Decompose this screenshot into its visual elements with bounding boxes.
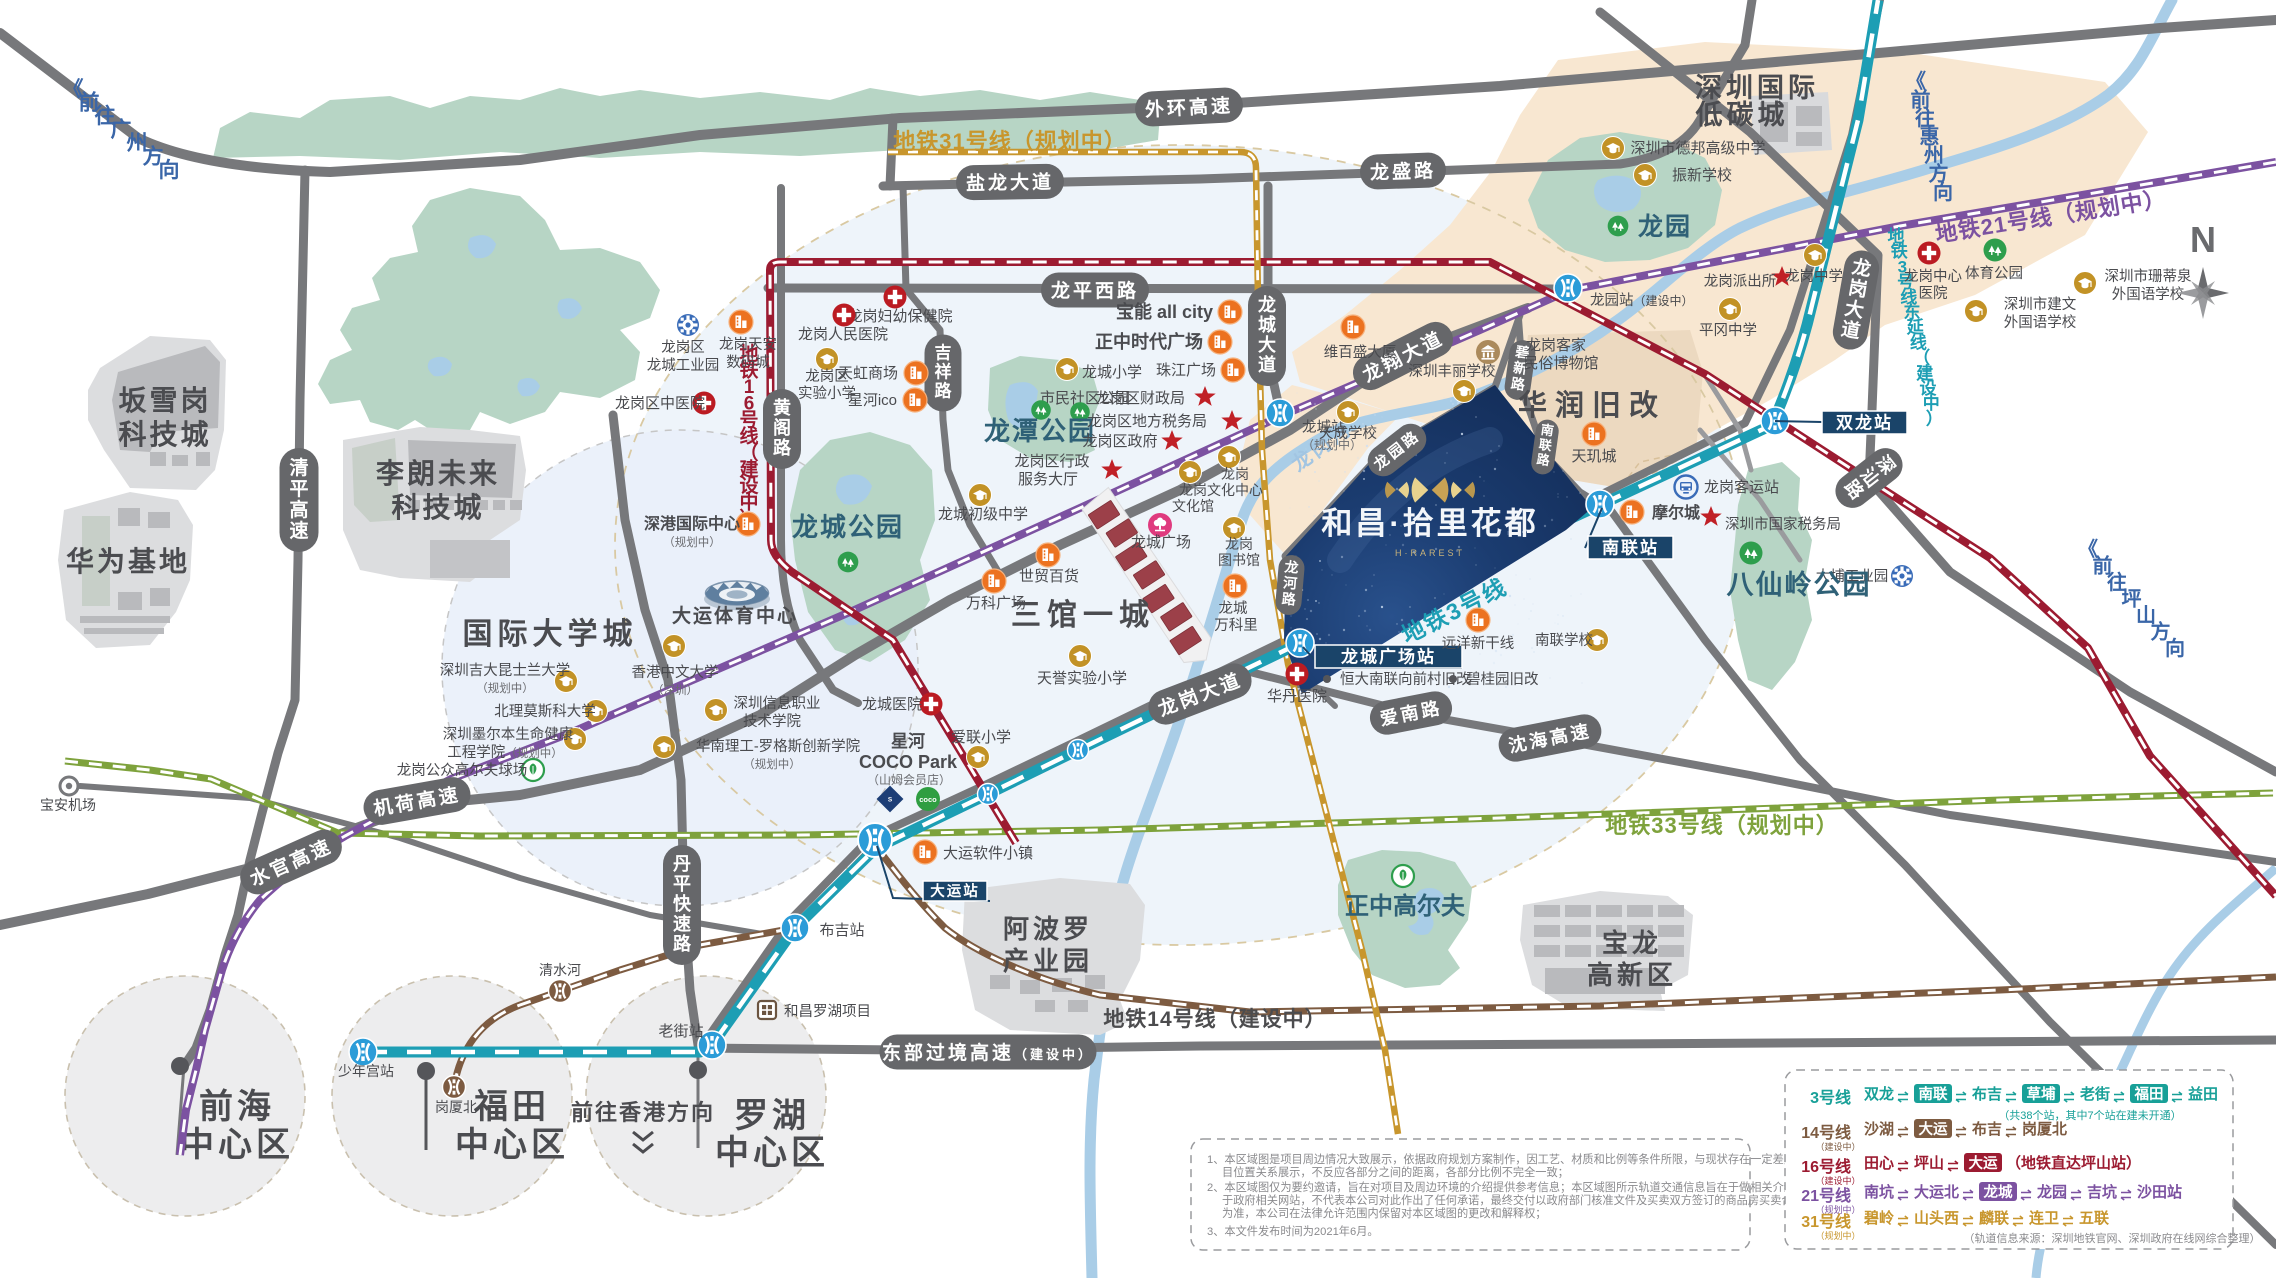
svg-text:南联学校: 南联学校 [1535,632,1593,649]
svg-text:龙岗区中医院: 龙岗区中医院 [615,394,705,412]
svg-text:于政府相关网站，不代表本公司对此作出了任何承诺，最终交付以政: 于政府相关网站，不代表本公司对此作出了任何承诺，最终交付以政府部门核准文件及买卖… [1222,1193,1849,1207]
svg-text:深港国际中心: 深港国际中心 [644,514,740,533]
svg-text:和昌·拾里花都: 和昌·拾里花都 [1321,506,1538,541]
svg-text:前往香港方向: 前往香港方向 [571,1100,715,1125]
svg-text:向: 向 [159,158,180,182]
svg-text:31号线: 31号线 [1801,1212,1851,1231]
svg-text:龙城工业园: 龙城工业园 [647,357,720,374]
svg-text:地铁33号线（规划中）: 地铁33号线（规划中） [1605,813,1838,838]
svg-text:民俗博物馆: 民俗博物馆 [1523,355,1598,372]
svg-text:连卫: 连卫 [2029,1209,2059,1227]
svg-text:田心: 田心 [1864,1155,1894,1172]
svg-text:）: ） [1926,408,1943,428]
svg-text:宝能 all city: 宝能 all city [1116,301,1213,322]
svg-text:大运北: 大运北 [1914,1183,1959,1201]
svg-text:速: 速 [673,913,691,934]
svg-text:1、本区域图是项目周边情况大致展示，依据政府规划方案制作，因: 1、本区域图是项目周边情况大致展示，依据政府规划方案制作，因工艺、材质和比例等条… [1207,1152,1851,1166]
svg-text:路: 路 [935,381,953,401]
svg-text:龙岗中学: 龙岗中学 [1785,268,1843,285]
svg-text:为准，本公司在法律允许范围内保留对本区域图的更改和解释权；: 为准，本公司在法律允许范围内保留对本区域图的更改和解释权； [1222,1206,1546,1220]
svg-text:龙城: 龙城 [1219,600,1248,617]
svg-text:龙: 龙 [1258,294,1276,315]
svg-text:中心区: 中心区 [180,1126,294,1164]
svg-text:吉坑: 吉坑 [2087,1183,2117,1201]
svg-text:大: 大 [1258,334,1276,355]
svg-text:大运: 大运 [1919,1120,1948,1138]
svg-text:大运: 大运 [1969,1154,1998,1172]
svg-text:深圳丰丽学校: 深圳丰丽学校 [1409,363,1496,380]
svg-text:COCO Park: COCO Park [859,752,958,772]
svg-text:科技城: 科技城 [391,492,484,523]
svg-text:低碳城: 低碳城 [1695,100,1789,130]
svg-text:布吉站: 布吉站 [819,922,864,939]
svg-text:（规划中）: （规划中） [476,681,534,695]
svg-text:三馆一城: 三馆一城 [1011,598,1155,632]
svg-text:（地铁直达坪山站）: （地铁直达坪山站） [2006,1154,2141,1172]
svg-text:高新区: 高新区 [1587,960,1677,990]
svg-text:华南理工-罗格斯创新学院: 华南理工-罗格斯创新学院 [696,738,861,755]
svg-text:岗: 岗 [1847,277,1870,302]
svg-text:龙: 龙 [1850,255,1873,281]
svg-text:正中时代广场: 正中时代广场 [1095,331,1203,352]
svg-text:深圳墨尔本生命健康: 深圳墨尔本生命健康 [443,725,574,743]
svg-text:沙田站: 沙田站 [2137,1183,2182,1201]
svg-text:福田: 福田 [2134,1085,2164,1103]
svg-text:中心区: 中心区 [715,1134,829,1172]
svg-text:摩尔城: 摩尔城 [1652,503,1700,522]
svg-text:（建设中）: （建设中） [1815,1141,1860,1152]
svg-text:科技城: 科技城 [118,419,211,450]
svg-text:深圳市珊蒂泉: 深圳市珊蒂泉 [2105,268,2192,285]
svg-text:龙岗: 龙岗 [1179,482,1207,498]
svg-text:数码城: 数码城 [726,354,770,371]
svg-text:爱联小学: 爱联小学 [951,729,1011,746]
svg-text:龙岗区行政: 龙岗区行政 [1014,453,1089,470]
svg-text:碧桂园旧改: 碧桂园旧改 [1466,671,1539,688]
svg-text:李朗未来: 李朗未来 [376,458,500,489]
svg-text:龙岗人民医院: 龙岗人民医院 [798,325,888,343]
svg-text:龙城医院: 龙城医院 [862,695,922,713]
svg-text:龙岗客家: 龙岗客家 [1526,337,1586,354]
svg-text:深圳信息职业: 深圳信息职业 [734,695,821,712]
svg-text:道: 道 [1258,354,1276,375]
svg-text:大运站: 大运站 [930,882,980,900]
svg-text:（共38个站，其中7个站在建未开通）: （共38个站，其中7个站在建未开通） [1998,1108,2181,1122]
svg-text:深圳国际: 深圳国际 [1695,73,1819,103]
svg-text:21号线: 21号线 [1801,1186,1851,1205]
svg-text:龙岗天安: 龙岗天安 [719,336,777,353]
svg-text:宝龙: 宝龙 [1602,928,1662,958]
svg-text:双龙站: 双龙站 [1836,413,1893,433]
svg-text:香港中文大学: 香港中文大学 [632,664,719,681]
svg-text:服务大厅: 服务大厅 [1018,471,1078,488]
svg-text:体育公园: 体育公园 [1965,265,2023,282]
svg-text:福田: 福田 [473,1088,550,1126]
svg-text:麟联: 麟联 [1979,1209,2010,1227]
svg-text:（深圳）: （深圳） [652,683,698,697]
svg-text:2、本区域图仅为要约邀请，旨在对项目及周边环境的介绍提供参考: 2、本区域图仅为要约邀请，旨在对项目及周边环境的介绍提供参考信息；本区域图所示轨… [1207,1180,1851,1194]
svg-text:阿波罗: 阿波罗 [1003,914,1093,944]
svg-text:龙岗: 龙岗 [1221,466,1249,482]
svg-text:龙岗中心: 龙岗中心 [1904,268,1962,285]
svg-text:龙岗妇幼保健院: 龙岗妇幼保健院 [847,307,952,325]
svg-text:图书馆: 图书馆 [1218,552,1260,568]
svg-text:华丹医院: 华丹医院 [1267,687,1327,705]
svg-text:龙城广场站: 龙城广场站 [1340,647,1436,667]
svg-text:N: N [2190,219,2216,260]
svg-text:（建设中）: （建设中） [1815,1175,1860,1186]
svg-text:文化中心: 文化中心 [1207,482,1263,498]
svg-text:H·RAREST: H·RAREST [1395,548,1465,558]
svg-text:龙平西路: 龙平西路 [1051,279,1139,302]
svg-text:岗厦北: 岗厦北 [435,1099,477,1115]
svg-text:宝安机场: 宝安机场 [40,797,96,813]
svg-text:中心区: 中心区 [455,1126,569,1164]
svg-text:3、本文件发布时间为2021年6月。: 3、本文件发布时间为2021年6月。 [1207,1224,1379,1238]
svg-text:祥: 祥 [935,362,952,382]
svg-text:国际大学城: 国际大学城 [463,617,638,651]
svg-text:高: 高 [289,498,308,521]
svg-text:丹: 丹 [673,854,691,874]
svg-text:大: 大 [1843,296,1866,322]
svg-text:龙: 龙 [1283,558,1299,575]
svg-text:正中高尔夫: 正中高尔夫 [1345,892,1466,920]
svg-text:和昌罗湖项目: 和昌罗湖项目 [784,1003,871,1020]
svg-text:河: 河 [1283,574,1298,591]
svg-text:深圳吉大昆士兰大学: 深圳吉大昆士兰大学 [440,662,571,679]
svg-text:路: 路 [1281,590,1297,607]
svg-text:深圳市德邦高级中学: 深圳市德邦高级中学 [1630,139,1765,157]
svg-text:平冈中学: 平冈中学 [1699,322,1757,339]
svg-text:路: 路 [773,437,792,458]
svg-text:龙岗客运站: 龙岗客运站 [1704,479,1779,496]
svg-text:星河: 星河 [891,732,925,751]
svg-text:龙岗区政府: 龙岗区政府 [1082,433,1157,450]
svg-text:龙城小学: 龙城小学 [1082,364,1142,381]
svg-text:产业园: 产业园 [1003,946,1093,976]
svg-text:华润旧改: 华润旧改 [1518,388,1666,422]
svg-text:天虹商场: 天虹商场 [838,365,898,382]
svg-text:路: 路 [673,933,692,954]
svg-text:外国语学校: 外国语学校 [2004,314,2077,331]
svg-text:龙岗区: 龙岗区 [661,339,705,356]
svg-text:龙岗区地方税务局: 龙岗区地方税务局 [1087,413,1207,430]
svg-text:技术学院: 技术学院 [743,713,801,730]
svg-text:向: 向 [2165,636,2185,660]
svg-text:南联: 南联 [1919,1085,1948,1103]
svg-text:平: 平 [673,874,691,894]
svg-text:南坑: 南坑 [1864,1183,1894,1201]
svg-text:速: 速 [289,519,308,542]
svg-text:盐龙大道: 盐龙大道 [966,170,1054,195]
svg-text:万科里: 万科里 [1214,617,1258,634]
svg-text:龙岗: 龙岗 [1225,536,1253,552]
svg-text:外国语学校: 外国语学校 [2112,286,2185,303]
svg-text:坂雪岗: 坂雪岗 [118,385,211,416]
svg-text:龙城广场: 龙城广场 [1131,534,1191,551]
svg-text:罗湖: 罗湖 [734,1097,810,1135]
svg-text:天成学校: 天成学校 [1319,425,1377,442]
svg-text:草埔: 草埔 [2027,1085,2057,1103]
svg-text:山头西: 山头西 [1914,1210,1959,1227]
svg-text:前海: 前海 [199,1088,275,1126]
svg-text:14号线: 14号线 [1801,1123,1851,1142]
svg-text:沙湖: 沙湖 [1864,1121,1894,1138]
svg-text:平: 平 [289,479,308,500]
svg-text:岗厦北: 岗厦北 [2022,1120,2067,1138]
svg-text:双龙: 双龙 [1864,1085,1894,1103]
svg-text:珠江广场: 珠江广场 [1156,362,1216,379]
svg-text:龙潭公园: 龙潭公园 [984,416,1096,446]
svg-text:（规划中）: （规划中） [1815,1230,1860,1241]
svg-text:坪山: 坪山 [1914,1155,1944,1172]
svg-text:远洋新干线: 远洋新干线 [1442,635,1515,652]
svg-text:世贸百货: 世贸百货 [1019,568,1079,585]
svg-text:文化馆: 文化馆 [1172,498,1214,514]
svg-text:城: 城 [1258,314,1276,335]
svg-text:地铁31号线（规划中）: 地铁31号线（规划中） [893,129,1126,154]
svg-text:深圳市国家税务局: 深圳市国家税务局 [1725,516,1841,533]
svg-text:龙岗区财政局: 龙岗区财政局 [1095,390,1185,407]
svg-text:振新学校: 振新学校 [1672,167,1732,184]
svg-text:（轨道信息来源：深圳地铁官网、深圳政府在线网综合整理）: （轨道信息来源：深圳地铁官网、深圳政府在线网综合整理） [1964,1231,2261,1245]
svg-text:南: 南 [1540,422,1555,439]
svg-text:维百盛大厦: 维百盛大厦 [1324,344,1397,361]
svg-text:龙园: 龙园 [1638,213,1692,241]
svg-text:龙岗派出所: 龙岗派出所 [1704,273,1777,290]
svg-text:老街站: 老街站 [658,1023,703,1040]
svg-text:向: 向 [1933,180,1953,204]
svg-text:（山姆会员店）: （山姆会员店） [867,773,951,787]
svg-text:清水河: 清水河 [539,962,581,978]
svg-text:黄: 黄 [773,397,791,418]
svg-text:龙城: 龙城 [1983,1183,2013,1201]
svg-text:碧岭: 碧岭 [1863,1209,1894,1227]
svg-text:16号线: 16号线 [1801,1157,1851,1176]
svg-text:清: 清 [289,456,308,479]
svg-text:道: 道 [1839,317,1862,343]
svg-text:龙城公园: 龙城公园 [792,512,904,542]
svg-text:龙园站（建设中）: 龙园站（建设中） [1590,292,1694,309]
svg-text:（规划中）: （规划中） [743,757,801,771]
svg-text:吉: 吉 [935,344,952,363]
svg-text:龙盛路: 龙盛路 [1370,159,1437,184]
svg-text:布吉: 布吉 [1972,1085,2002,1103]
svg-text:深圳市建文: 深圳市建文 [2004,296,2077,313]
svg-text:龙城初级中学: 龙城初级中学 [938,506,1028,523]
svg-text:南联站: 南联站 [1602,538,1659,558]
svg-text:星河ico: 星河ico [848,392,897,409]
svg-text:华为基地: 华为基地 [66,545,190,577]
svg-text:3号线: 3号线 [1810,1088,1851,1107]
svg-text:（规划中）: （规划中） [663,535,721,549]
svg-text:八仙岭公园: 八仙岭公园 [1727,570,1872,600]
svg-text:龙岗公众高尔夫球场: 龙岗公众高尔夫球场 [397,762,528,779]
svg-text:益田: 益田 [2188,1085,2218,1103]
svg-text:天玑城: 天玑城 [1571,448,1616,465]
svg-text:北理莫斯科大学: 北理莫斯科大学 [494,703,596,720]
svg-text:五联: 五联 [2079,1210,2110,1227]
svg-text:天誉实验小学: 天誉实验小学 [1037,670,1127,687]
svg-text:目位置关系展示，不反应各部分之间的距离，各部分比例不完全一致: 目位置关系展示，不反应各部分之间的距离，各部分比例不完全一致； [1222,1165,1569,1179]
svg-text:少年宫站: 少年宫站 [338,1063,394,1079]
svg-text:医院: 医院 [1919,285,1948,302]
svg-text:联: 联 [1538,437,1553,454]
svg-text:阁: 阁 [773,417,791,438]
svg-text:布吉: 布吉 [1972,1120,2002,1138]
svg-text:快: 快 [673,893,692,914]
svg-text:大运体育中心: 大运体育中心 [672,604,798,627]
svg-text:龙园: 龙园 [2036,1183,2067,1201]
svg-text:老街: 老街 [2079,1085,2110,1103]
svg-text:大运软件小镇: 大运软件小镇 [943,845,1033,862]
svg-text:地铁14号线（建设中）: 地铁14号线（建设中） [1103,1007,1326,1031]
